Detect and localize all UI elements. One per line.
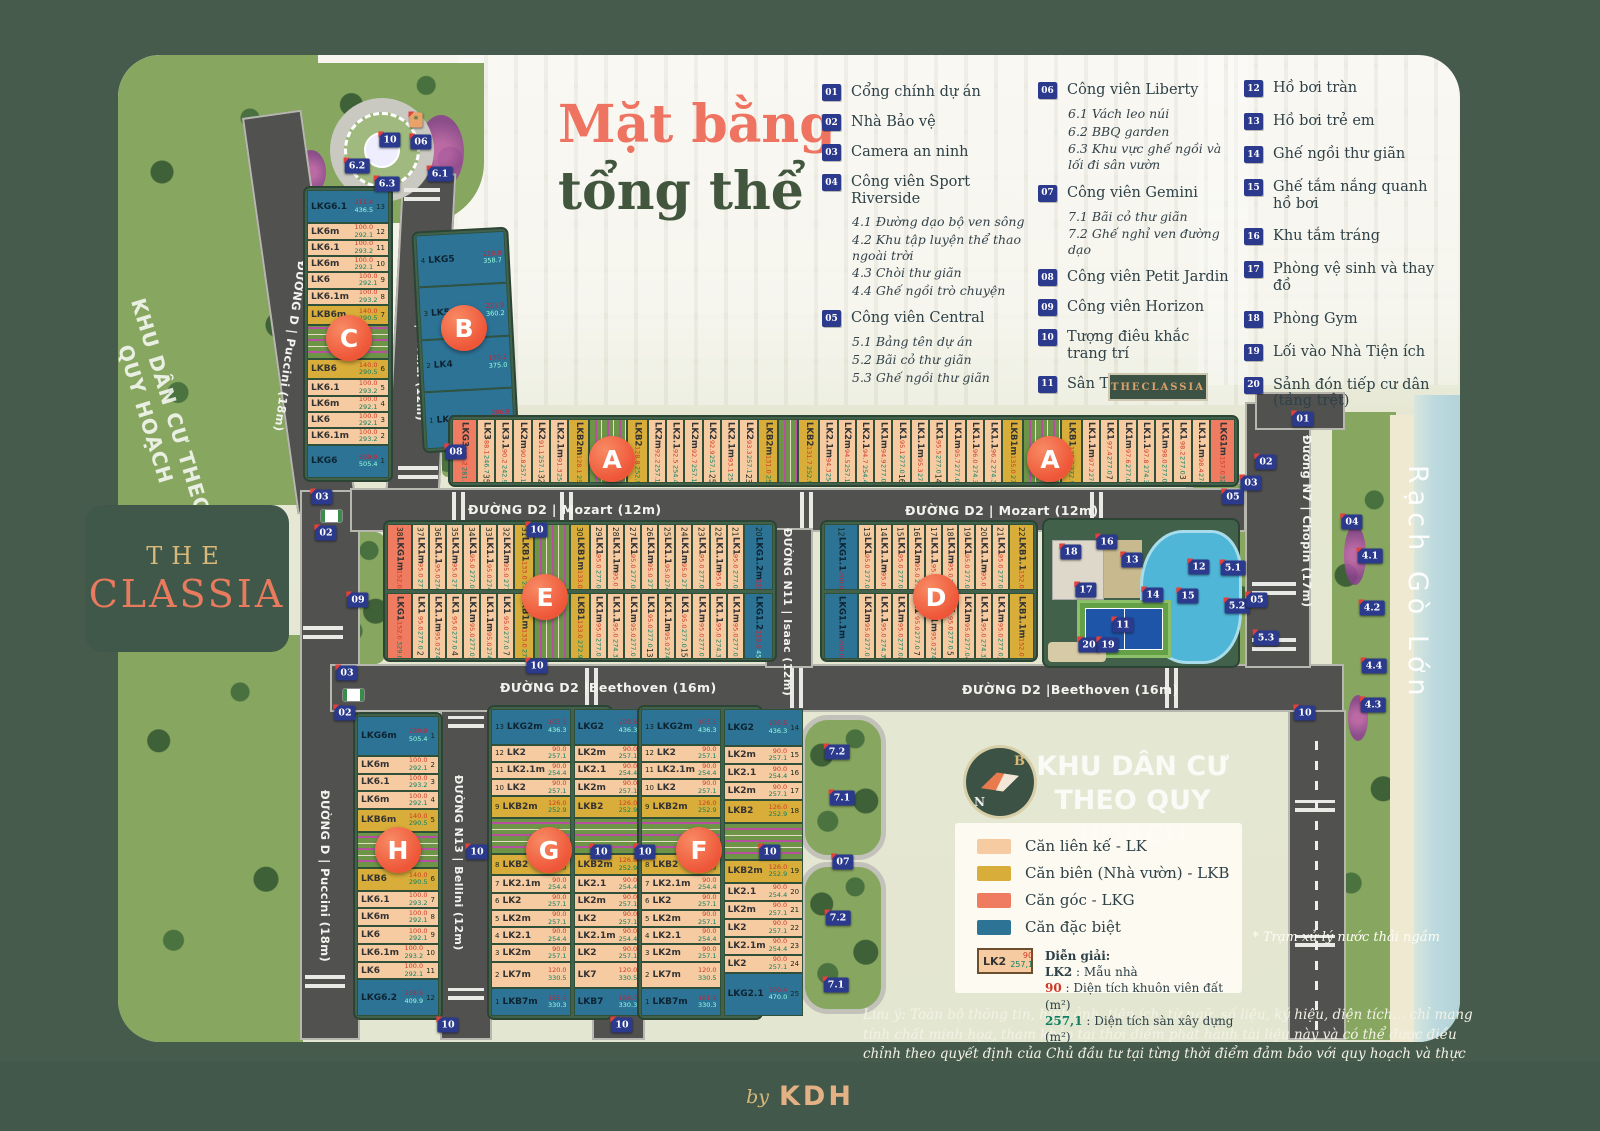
legend-item-05: 05Công viên Central: [822, 310, 1034, 327]
lot-code: LK1m: [963, 596, 972, 623]
lot-areas: 95.0274.3: [612, 572, 619, 590]
lot-LKG2: LKG2203.5436.314: [724, 709, 804, 746]
lot-number: 3: [423, 309, 428, 317]
lot-number: 7: [501, 651, 510, 656]
footer-bar: by KDH: [0, 1062, 1600, 1131]
lot-number: 21: [996, 527, 1005, 537]
lot-areas: 94.9277.0: [880, 449, 887, 483]
lot-LKB1: LKB1133.0272.99: [570, 593, 590, 659]
lot-LK1: 34LK195.0277.0: [463, 524, 480, 590]
lot-LKG1m: 38LKG1m152.0329.0: [387, 524, 412, 590]
legend-item-12: 12Hồ bơi tràn: [1244, 80, 1449, 97]
legend-item-label: Công viên Central: [851, 310, 984, 327]
lot-areas: 90.0257.1: [769, 956, 788, 971]
lot-LK1m: 37LK1m95.0277.0: [412, 524, 429, 590]
lot-areas: 95.0277.0: [646, 614, 653, 648]
lot-areas: 92.5254.4: [672, 449, 679, 483]
lot-code: LK1.1m: [979, 537, 988, 573]
lot-LK6m: LK6m100.0292.12: [357, 756, 439, 774]
lot-areas: 90.0254.4: [548, 763, 567, 778]
lot-number: 10: [376, 260, 385, 268]
lot-number: 12: [376, 228, 385, 236]
lot-code: LK6.1: [311, 243, 340, 253]
lot-code: LKG2: [728, 723, 754, 733]
lot-areas: 208.0455.3: [838, 639, 845, 659]
lot-LK6.1m: LK6.1m100.0293.28: [307, 289, 389, 305]
lot-LK1: LK197.4277.07: [1100, 419, 1118, 483]
legend-item-label: Hồ bơi trẻ em: [1273, 113, 1375, 130]
lot-areas: 91.3254.4: [556, 458, 563, 483]
lot-number: 18: [790, 807, 799, 815]
lot-areas: 203.5436.3: [769, 720, 788, 735]
lot-number: 7: [381, 311, 385, 319]
lot-areas: 90.0257.1: [548, 746, 567, 761]
lot-LK2: 10LK290.0257.1: [491, 779, 571, 796]
lot-type-legend-panel: Căn liên kế - LKCăn biên (Nhà vườn) - LK…: [955, 823, 1242, 993]
legend-item-label: Sảnh đón tiếp cư dân (tầng trệt): [1273, 377, 1449, 410]
lot-code: LK7m: [502, 970, 530, 980]
lot-areas: 90.0257.1: [698, 911, 717, 926]
lot-LK6m: LK6m100.0292.18: [357, 908, 439, 926]
lot-LKB2m: LKB2m126.0252.919: [724, 860, 804, 883]
lot-code: LK1: [862, 537, 871, 555]
lot-code: LK2.1: [861, 422, 870, 449]
lot-LK1: LK195.0277.013: [641, 593, 658, 659]
lot-LK1m: LK1m95.0277.012: [624, 593, 641, 659]
lot-areas: 95.0277.0: [595, 554, 602, 588]
lot-code: LKB1: [1067, 422, 1076, 446]
logo-the: THE: [146, 542, 227, 570]
lot-code: LK2: [708, 422, 717, 440]
lot-number: 17: [929, 527, 938, 537]
legend-sub-items: 7.1 Bãi cỏ thư giãn7.2 Ghế nghỉ ven đườn…: [1068, 209, 1230, 258]
road-beethoven: [330, 664, 1344, 712]
lot-code: LKB2m: [575, 422, 584, 455]
legend-item-label: Hồ bơi tràn: [1273, 80, 1357, 97]
road-label-bellini: ĐƯỜNG N13 | Bellini (12m): [452, 775, 465, 995]
crosswalk: [800, 492, 816, 528]
lot-LK1: LK195.0277.02: [412, 593, 429, 659]
lot-LK2m: 3LK2m90.0257.1: [491, 944, 571, 961]
lot-number: 11: [611, 657, 620, 659]
lot-LK1m: 26LK1m95.0277.0: [641, 524, 658, 590]
lot-number: 2: [416, 651, 425, 656]
lot-LK1.1: LK1.195.0274.317: [710, 593, 727, 659]
lot-code: LK1m: [879, 422, 888, 449]
lot-areas: 95.0274.3: [715, 572, 722, 590]
lot-code: LK2.1: [578, 879, 607, 889]
lot-code: LK1m: [502, 537, 511, 564]
lot-number: 15: [790, 751, 799, 759]
lot-areas: 90.0254.4: [769, 884, 788, 899]
lot-number: 13: [862, 527, 871, 537]
lot-number: 9: [431, 931, 435, 939]
lot-number: 38: [395, 527, 404, 537]
lot-areas: 152.0329.0: [396, 621, 403, 659]
map-marker-11: 11: [1112, 618, 1133, 633]
lot-code: LK2: [578, 948, 597, 958]
lot-code: LKB2: [805, 422, 814, 446]
lot-code: LKG1.1m: [837, 596, 846, 639]
lot-number: 19: [962, 527, 971, 537]
road-label-beethoven-east: ĐƯỜNG D2 |Beethoven (16m): [962, 682, 1179, 697]
map-marker-6.3: 6.3: [375, 177, 400, 192]
lot-LK1.1m: 28LK1.1m95.0274.3: [607, 524, 624, 590]
map-marker-07: 07: [832, 855, 853, 870]
block-e: 38LKG1m152.0329.037LK1m95.0277.036LK1.19…: [383, 520, 777, 662]
lot-number: 1: [495, 998, 499, 1006]
lot-LKG6.2: LKG6.2238.5409.912: [357, 979, 439, 1016]
page-title: Mặt bằng tổng thể: [558, 92, 836, 225]
lot-code: LK6m: [361, 795, 389, 805]
lot-LK2: 6LK290.0257.1: [641, 893, 721, 910]
block-a-row: LKG3140.2281.536LK388.1246.735LK3.190.22…: [448, 415, 1239, 487]
title-line-1: Mặt bằng: [558, 92, 836, 159]
lot-number: 10: [645, 784, 654, 792]
lot-areas: 95.0274.3: [434, 632, 441, 659]
compass-needle: [978, 766, 1022, 797]
lot-LK6.1: LK6.1100.0293.23: [357, 774, 439, 792]
lot-code: LK1: [594, 537, 603, 555]
lot-code: LK2.1: [728, 887, 757, 897]
map-marker-03: 03: [311, 490, 332, 505]
lot-number: 6: [431, 875, 435, 883]
lot-LK1m: LK1m94.9277.017: [874, 419, 892, 483]
lot-code: LKB2: [728, 806, 754, 816]
lot-code: LKB1: [575, 596, 584, 620]
lot-areas: 126.0252.9: [769, 804, 788, 819]
lot-LK7m: 2LK7m120.0330.5: [491, 962, 571, 988]
lot-areas: 97.4277.0: [1106, 441, 1113, 475]
lot-areas: 95.0277.0: [897, 554, 904, 588]
lot-areas: 95.0277.0: [947, 616, 954, 650]
lot-LKB1m: 30LKB1m133.0272.9: [570, 524, 590, 590]
lot-LK2: 12LK290.0257.1: [491, 745, 571, 762]
lot-areas: 95.0274.3: [980, 572, 987, 590]
lot-code: LKG1m: [1218, 422, 1227, 456]
lot-code: LK1.1m: [1087, 422, 1096, 458]
lot-number: 13: [645, 723, 654, 731]
legend-item-01: 01Cổng chính dự án: [822, 84, 1034, 101]
road-label-beethoven-west: ĐƯỜNG D2 |Beethoven (16m): [500, 680, 717, 695]
lot-areas: 218.0358.7: [483, 250, 502, 266]
developer-logo: KDH: [779, 1081, 854, 1112]
lot-LKB2m: LKB2m131.0252.922: [758, 419, 779, 483]
lot-areas: 239.9505.4: [409, 728, 428, 743]
lot-LK1.1m: LK1.1m95.0274.33: [429, 593, 446, 659]
map-marker-10: 10: [526, 523, 547, 538]
lot-areas: 92.7257.1: [690, 449, 697, 483]
lot-code: LK1m: [896, 596, 905, 623]
lot-code: LKB2: [502, 860, 528, 870]
legend-item-10: 10Tượng điêu khắc trang trí: [1038, 329, 1230, 362]
block-f-right: LKG2203.5436.314LK2m90.0257.115LK2.190.0…: [724, 709, 804, 1016]
lot-number: 3: [979, 657, 988, 659]
block-marker-A: A: [589, 436, 635, 482]
lot-areas: 90.0257.1: [548, 780, 567, 795]
map-marker-7.1: 7.1: [824, 978, 849, 993]
lot-code: LKG1m: [395, 537, 404, 571]
lot-LKG6: LKG6239.9505.41: [307, 445, 389, 478]
lot-LK2.1m: 11LK2.1m90.0254.4: [641, 762, 721, 779]
lot-LKB1m: LKB1m135.0272.910: [1002, 419, 1023, 483]
lot-LK2m: LK2m90.0257.115: [724, 746, 804, 764]
lot-number: 6: [381, 365, 385, 373]
lot-number: 14: [790, 724, 799, 732]
lot-number: 12: [495, 749, 504, 757]
lot-code: LKG2m: [657, 722, 693, 732]
lot-LK2: 12LK290.0257.1: [641, 745, 721, 762]
lot-areas: 157.0324.9: [1219, 456, 1226, 483]
lot-areas: 90.0257.1: [619, 911, 638, 926]
lot-code: LK1: [963, 537, 972, 555]
lot-areas: 95.0277.0: [468, 554, 475, 588]
map-marker-19: 19: [1097, 638, 1118, 653]
lot-LKB1.1: 22LKB1.1152.0329.1: [1009, 524, 1035, 590]
lot-areas: 131.0252.9: [765, 455, 772, 483]
legend-item-label: Công viên Gemini: [1067, 185, 1198, 202]
map-marker-10: 10: [437, 1018, 458, 1033]
lot-LK1.1: 36LK1.195.0274.3: [429, 524, 446, 590]
lot-number: 32: [501, 527, 510, 537]
lot-number: 2: [645, 971, 649, 979]
lot-LKB2m: 9LKB2m126.0252.9: [641, 796, 721, 818]
lot-LK6m: LK6m100.0292.14: [307, 396, 389, 412]
lot-areas: 90.8257.1: [519, 449, 526, 483]
lot-code: LK3.1: [500, 422, 509, 449]
map-marker-12: 12: [1188, 560, 1209, 575]
lot-LK2: LK292.9257.125: [703, 419, 721, 483]
legend-item-label: Tượng điêu khắc trang trí: [1067, 329, 1230, 362]
lot-number: 27: [628, 527, 637, 537]
lot-code: LKG2m: [507, 722, 543, 732]
lot-number: 16: [897, 474, 906, 483]
lot-LK2m: LK2m90.0257.117: [724, 782, 804, 800]
lot-code: LKB2m: [578, 860, 613, 870]
lot-number: 7: [495, 880, 499, 888]
lot-code: LK1m: [946, 537, 955, 564]
lot-number: 7: [431, 896, 435, 904]
lot-number: 10: [594, 657, 603, 659]
map-marker-02: 02: [334, 706, 355, 721]
lot-areas: 100.0292.1: [354, 224, 373, 239]
lot-LK1m: 32LK1m95.0277.0: [497, 524, 514, 590]
road-label-chopin: Đường N7 | Chopin (17m): [1300, 435, 1314, 635]
lot-code: LK2m: [842, 422, 851, 449]
lot-number: 3: [1178, 475, 1187, 480]
lot-LK1.1m: LK1.1m97.2274.38: [1082, 419, 1100, 483]
lot-number: 4: [431, 796, 435, 804]
legend-item-15: 15Ghế tắm nắng quanh hồ bơi: [1244, 179, 1449, 212]
legend-item-label: Công viên Horizon: [1067, 299, 1204, 316]
amenity-area: [1042, 518, 1240, 668]
lot-number: 22: [714, 527, 723, 537]
lot-code: LKB2: [633, 422, 642, 446]
lot-areas: 95.0277.0: [595, 623, 602, 657]
lot-number: 33: [484, 527, 493, 537]
lot-code: LK2m: [502, 948, 530, 958]
lot-number: 14: [879, 527, 888, 537]
lot-code: LKG6.2: [361, 993, 397, 1003]
lot-areas: 95.0274.3: [715, 623, 722, 657]
lot-code: LKB1.1m: [1017, 596, 1026, 638]
lot-areas: 93.3257.1: [745, 440, 752, 474]
map-marker-10: 10: [526, 659, 547, 674]
lot-code: LK1: [680, 596, 689, 614]
lot-LK1m: LK1m95.0277.010: [858, 593, 875, 659]
lot-number: 15: [679, 648, 688, 658]
lot-code: LK2: [537, 422, 546, 440]
lot-areas: 95.0277.0: [897, 623, 904, 657]
legend-item-18: 18Phòng Gym: [1244, 311, 1449, 328]
lot-areas: 95.0274.3: [485, 564, 492, 590]
map-marker-02: 02: [315, 526, 336, 541]
lot-areas: 95.0274.3: [485, 632, 492, 659]
lot-code: LK2m: [518, 422, 527, 449]
lot-LKG2m: 13LKG2m203.5436.3: [641, 709, 721, 745]
lot-areas: 90.0254.4: [619, 877, 638, 892]
lot-LK1: 21LK195.0277.0: [727, 524, 744, 590]
lot-areas: 90.0257.1: [698, 894, 717, 909]
lot-number: 2: [431, 761, 435, 769]
crosswalk: [404, 188, 440, 201]
legend-sub-items: 6.1 Vách leo núi6.2 BBQ garden6.3 Khu vự…: [1068, 106, 1230, 173]
lot-number: 26: [645, 527, 654, 537]
lot-code: LK2.1m: [507, 765, 545, 775]
lot-code: LK2: [578, 914, 597, 924]
lot-number: 9: [495, 803, 499, 811]
lot-LK2.1m: 11LK2.1m90.0254.4: [491, 762, 571, 779]
lot-code: LKB2m: [764, 422, 773, 455]
crosswalk: [303, 626, 343, 639]
map-marker-6.2: 6.2: [345, 159, 370, 174]
lot-areas: 95.0274.3: [664, 564, 671, 590]
map-marker-10: 10: [379, 133, 400, 148]
lot-number: 7: [912, 651, 921, 656]
lot-areas: 95.3274.3: [917, 458, 924, 483]
lot-LK1m: 24LK1m95.0277.0: [675, 524, 692, 590]
lot-code: LK2.1m: [657, 765, 695, 775]
lot-areas: 95.0277.0: [417, 563, 424, 590]
lot-number: 5: [645, 915, 649, 923]
lot-code: LK1m: [697, 596, 706, 623]
block-marker-A: A: [1027, 436, 1073, 482]
block-marker-E: E: [522, 574, 568, 620]
legend-item-label: Lối vào Nhà Tiện ích: [1273, 344, 1425, 361]
lot-areas: 100.0292.1: [354, 257, 373, 272]
lot-LKB7m: 1LKB7m161.8330.3: [641, 988, 721, 1016]
lot-code: LK1m: [912, 537, 921, 564]
block-marker-H: H: [375, 827, 421, 873]
lot-LK2: 10LK290.0257.1: [641, 779, 721, 796]
lot-number: 8: [381, 293, 385, 301]
lot-number: 11: [495, 766, 504, 774]
lot-LK1m: LK1m97.6277.06: [1118, 419, 1136, 483]
entrance-sign: THECLASSIA: [1108, 373, 1208, 401]
map-marker-06: 06: [410, 135, 431, 150]
legend-item-label: Ghế ngồi thư giãn: [1273, 146, 1405, 163]
legend-number-chip: 13: [1244, 113, 1263, 130]
lot-LK2.1: LK2.194.7254.418: [856, 419, 874, 483]
lot-LK2m: 5LK2m90.0257.1: [491, 910, 571, 927]
map-marker-10: 10: [466, 845, 487, 860]
lot-areas: 300.4470.0: [769, 987, 788, 1002]
lot-number: 6: [645, 897, 649, 905]
lot-LK6.1: LK6.1100.0293.25: [307, 379, 389, 395]
lot-areas: 94.5257.1: [843, 449, 850, 483]
lot-LK1.1: 33LK1.195.0274.3: [480, 524, 497, 590]
lot-areas: 95.0274.3: [612, 623, 619, 657]
lot-code: LK3: [482, 422, 491, 440]
lot-code: LK2: [657, 748, 676, 758]
lot-LK1m: LK1m95.7277.013: [947, 419, 965, 483]
lot-code: LK2: [652, 896, 671, 906]
lot-code: LK6.1: [361, 777, 390, 787]
legend-item-label: Phòng vệ sinh và thay đồ: [1273, 261, 1449, 294]
lot-code: LK1.1m: [916, 422, 925, 458]
footer-by: by: [746, 1086, 769, 1108]
lot-areas: 211.4436.5: [354, 199, 373, 214]
lot-areas: 100.0292.1: [409, 928, 428, 943]
lot-number: 18: [946, 527, 955, 537]
legend-item-02: 02Nhà Bảo vệ: [822, 114, 1034, 131]
lot-number: 36: [433, 527, 442, 537]
lot-areas: 95.0277.0: [698, 554, 705, 588]
lot-areas: 95.0277.0: [503, 563, 510, 590]
lot-LKG1: LKG1152.0329.01: [387, 593, 412, 659]
lot-number: 23: [744, 474, 753, 483]
lot-number: 4: [495, 932, 499, 940]
lot-code: LK1m: [996, 596, 1005, 623]
lot-LK2.1: 4LK2.190.0254.4: [491, 927, 571, 944]
lot-areas: 126.0252.9: [619, 800, 638, 815]
lot-areas: 120.0330.5: [619, 967, 638, 982]
lot-areas: 95.0277.0: [913, 616, 920, 650]
lot-LK1: LK195.0277.07: [497, 593, 514, 659]
lot-number: 23: [790, 942, 799, 950]
lot-number: 5: [946, 651, 955, 656]
lot-areas: 95.0274.3: [930, 632, 937, 659]
lot-code: LK1: [697, 537, 706, 555]
lot-areas: 95.0277.0: [503, 616, 510, 650]
lot-areas: 239.9505.4: [359, 454, 378, 469]
lot-code: LK1.1: [611, 596, 620, 623]
lot-code: LK2.1: [671, 422, 680, 449]
lot-areas: 140.0290.5: [409, 813, 428, 828]
lot-number: 7: [645, 880, 649, 888]
legend-item-04: 04Công viên Sport Riverside: [822, 174, 1034, 207]
lot-areas: 133.0272.9: [576, 570, 583, 590]
lot-areas: 95.0277.0: [698, 623, 705, 657]
lot-LK6.1: LK6.1100.0293.27: [357, 891, 439, 909]
lot-number: 2: [426, 362, 431, 370]
lot-number: 8: [431, 913, 435, 921]
map-marker-6.1: 6.1: [428, 167, 453, 182]
lot-LK1: 27LK195.0277.0: [624, 524, 641, 590]
lot-number: 25: [662, 527, 671, 537]
lot-number: 9: [381, 276, 385, 284]
lot-LK6: LK6100.0292.111: [357, 962, 439, 980]
lot-number: 7: [1105, 475, 1114, 480]
lot-LK1m: 35LK1m95.0277.0: [446, 524, 463, 590]
lot-LKB2: LKB2126.0252.918: [724, 800, 804, 823]
lot-areas: 203.5436.3: [619, 719, 638, 734]
lot-code: LKB7m: [652, 997, 687, 1007]
lot-LK6.1m: LK6.1m100.0293.210: [357, 944, 439, 962]
lot-number: 29: [594, 527, 603, 537]
lot-code: LK7: [578, 970, 597, 980]
lot-LK1.1m: LK1.1m95.0274.36: [480, 593, 497, 659]
